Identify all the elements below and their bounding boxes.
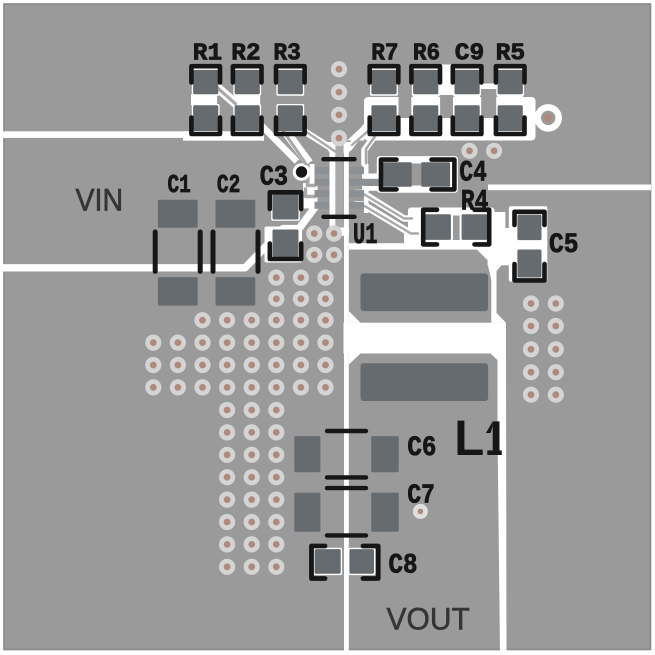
svg-text:VOUT: VOUT xyxy=(387,600,470,636)
svg-text:C2: C2 xyxy=(217,170,240,200)
svg-text:R1: R1 xyxy=(193,41,222,68)
svg-text:C8: C8 xyxy=(389,550,418,581)
svg-text:R7: R7 xyxy=(371,41,398,68)
svg-text:R4: R4 xyxy=(461,186,489,220)
svg-text:VIN: VIN xyxy=(76,182,124,218)
svg-text:R5: R5 xyxy=(496,41,526,68)
svg-text:C7: C7 xyxy=(407,481,435,511)
svg-text:C6: C6 xyxy=(407,433,436,464)
svg-text:U1: U1 xyxy=(353,219,377,253)
svg-text:R2: R2 xyxy=(231,41,260,68)
svg-text:C9: C9 xyxy=(455,41,485,68)
svg-text:R3: R3 xyxy=(273,41,301,68)
svg-text:C1: C1 xyxy=(168,170,191,200)
svg-text:C3: C3 xyxy=(260,163,288,194)
svg-text:C5: C5 xyxy=(549,230,579,261)
svg-text:R6: R6 xyxy=(413,41,440,68)
